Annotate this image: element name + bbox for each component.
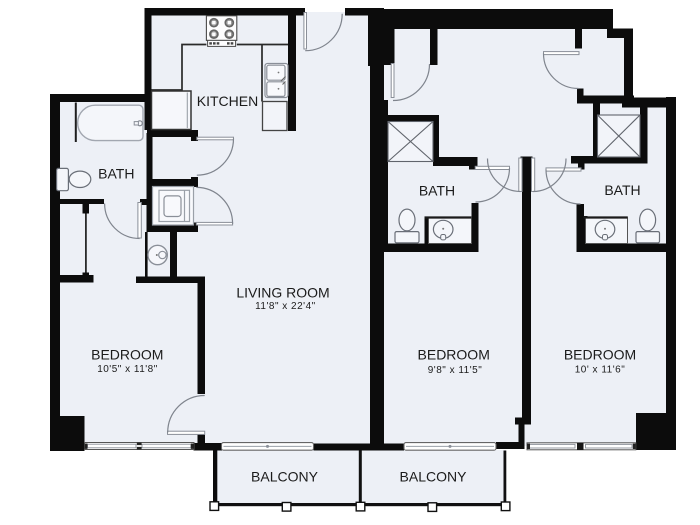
svg-text:10' x 11'6": 10' x 11'6" xyxy=(575,365,626,376)
svg-text:BALCONY: BALCONY xyxy=(251,469,319,485)
svg-text:BEDROOM: BEDROOM xyxy=(418,347,490,363)
svg-text:11'8" x 22'4": 11'8" x 22'4" xyxy=(255,301,316,312)
svg-text:LIVING ROOM: LIVING ROOM xyxy=(236,285,329,301)
svg-text:BEDROOM: BEDROOM xyxy=(564,347,636,363)
svg-text:KITCHEN: KITCHEN xyxy=(197,93,258,109)
svg-text:BEDROOM: BEDROOM xyxy=(91,347,163,363)
svg-text:BATH: BATH xyxy=(604,182,640,198)
svg-text:9'8" x 11'5": 9'8" x 11'5" xyxy=(428,365,483,376)
svg-text:BATH: BATH xyxy=(98,166,134,182)
svg-text:BATH: BATH xyxy=(419,183,455,199)
svg-text:BALCONY: BALCONY xyxy=(400,469,468,485)
svg-text:10'5" x 11'8": 10'5" x 11'8" xyxy=(97,364,158,375)
